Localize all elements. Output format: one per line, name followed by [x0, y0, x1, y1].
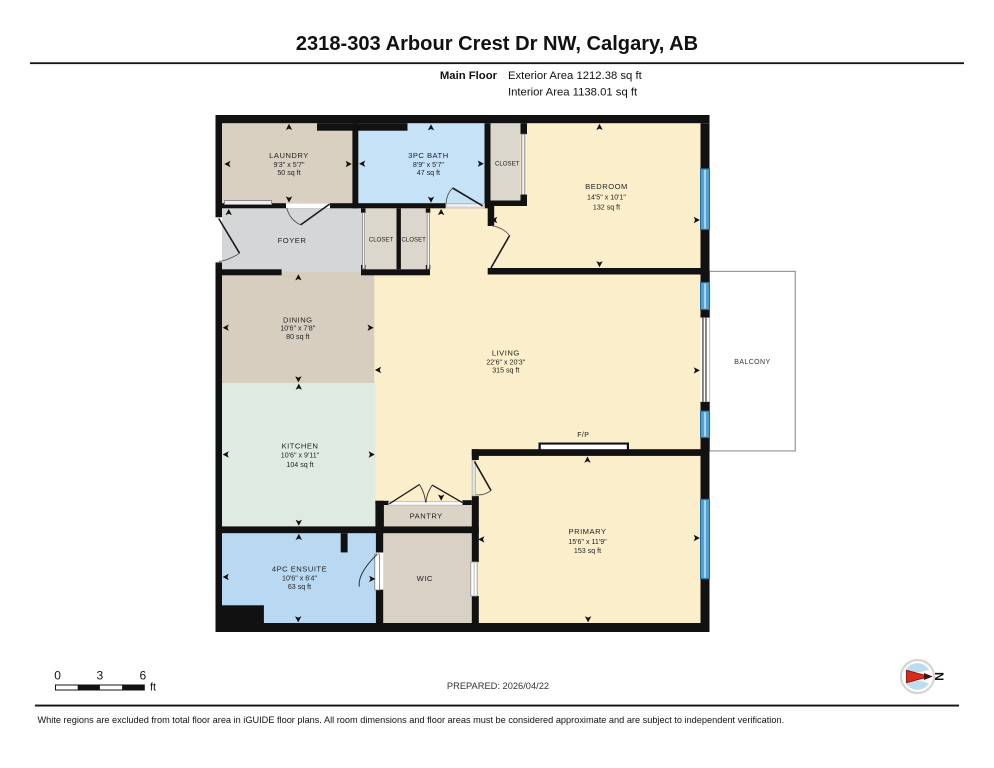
- svg-text:BALCONY: BALCONY: [734, 359, 770, 366]
- svg-text:153 sq ft: 153 sq ft: [574, 547, 601, 555]
- svg-text:6: 6: [139, 669, 146, 683]
- svg-text:PRIMARY: PRIMARY: [569, 527, 607, 536]
- svg-text:50 sq ft: 50 sq ft: [277, 169, 300, 177]
- svg-text:3PC BATH: 3PC BATH: [408, 151, 449, 160]
- svg-text:LIVING: LIVING: [492, 349, 520, 358]
- svg-text:Exterior Area 1212.38 sq ft: Exterior Area 1212.38 sq ft: [508, 70, 643, 82]
- svg-text:4PC ENSUITE: 4PC ENSUITE: [272, 565, 327, 574]
- svg-text:9'3" x 5'7": 9'3" x 5'7": [273, 161, 304, 169]
- svg-text:White regions are excluded fro: White regions are excluded from total fl…: [38, 715, 785, 725]
- svg-text:0: 0: [54, 669, 61, 683]
- svg-text:104 sq ft: 104 sq ft: [286, 461, 313, 469]
- svg-text:22'6" x 20'3": 22'6" x 20'3": [486, 358, 525, 366]
- svg-text:WIC: WIC: [417, 574, 433, 583]
- svg-text:CLOSET: CLOSET: [402, 236, 427, 243]
- svg-text:14'5" x 10'1": 14'5" x 10'1": [587, 194, 626, 202]
- svg-text:F/P: F/P: [577, 432, 589, 439]
- svg-text:CLOSET: CLOSET: [495, 161, 520, 168]
- svg-text:KITCHEN: KITCHEN: [282, 442, 319, 451]
- svg-text:Main Floor: Main Floor: [440, 70, 498, 82]
- svg-text:N: N: [932, 672, 946, 681]
- svg-text:132 sq ft: 132 sq ft: [593, 204, 620, 212]
- svg-text:FOYER: FOYER: [278, 236, 307, 245]
- svg-text:315 sq ft: 315 sq ft: [492, 367, 519, 375]
- svg-text:Interior Area 1138.01 sq ft: Interior Area 1138.01 sq ft: [508, 87, 638, 99]
- svg-text:PANTRY: PANTRY: [410, 512, 443, 521]
- svg-text:3: 3: [97, 669, 104, 683]
- svg-text:CLOSET: CLOSET: [369, 236, 394, 243]
- svg-text:15'6" x 11'9": 15'6" x 11'9": [568, 538, 607, 546]
- svg-text:PREPARED: 2026/04/22: PREPARED: 2026/04/22: [447, 681, 549, 691]
- svg-text:47 sq ft: 47 sq ft: [417, 169, 440, 177]
- svg-text:ft: ft: [150, 682, 156, 694]
- svg-text:2318-303 Arbour Crest Dr NW, C: 2318-303 Arbour Crest Dr NW, Calgary, AB: [296, 33, 698, 55]
- svg-text:63 sq ft: 63 sq ft: [288, 583, 311, 591]
- svg-text:LAUNDRY: LAUNDRY: [269, 151, 309, 160]
- svg-text:BEDROOM: BEDROOM: [585, 182, 628, 191]
- svg-text:10'6" x 6'4": 10'6" x 6'4": [282, 575, 317, 583]
- svg-text:DINING: DINING: [283, 315, 313, 324]
- svg-text:80 sq ft: 80 sq ft: [286, 333, 309, 341]
- svg-text:10'6" x 9'11": 10'6" x 9'11": [281, 452, 320, 460]
- svg-text:8'9" x 5'7": 8'9" x 5'7": [413, 161, 444, 169]
- svg-text:10'6" x 7'8": 10'6" x 7'8": [280, 325, 315, 333]
